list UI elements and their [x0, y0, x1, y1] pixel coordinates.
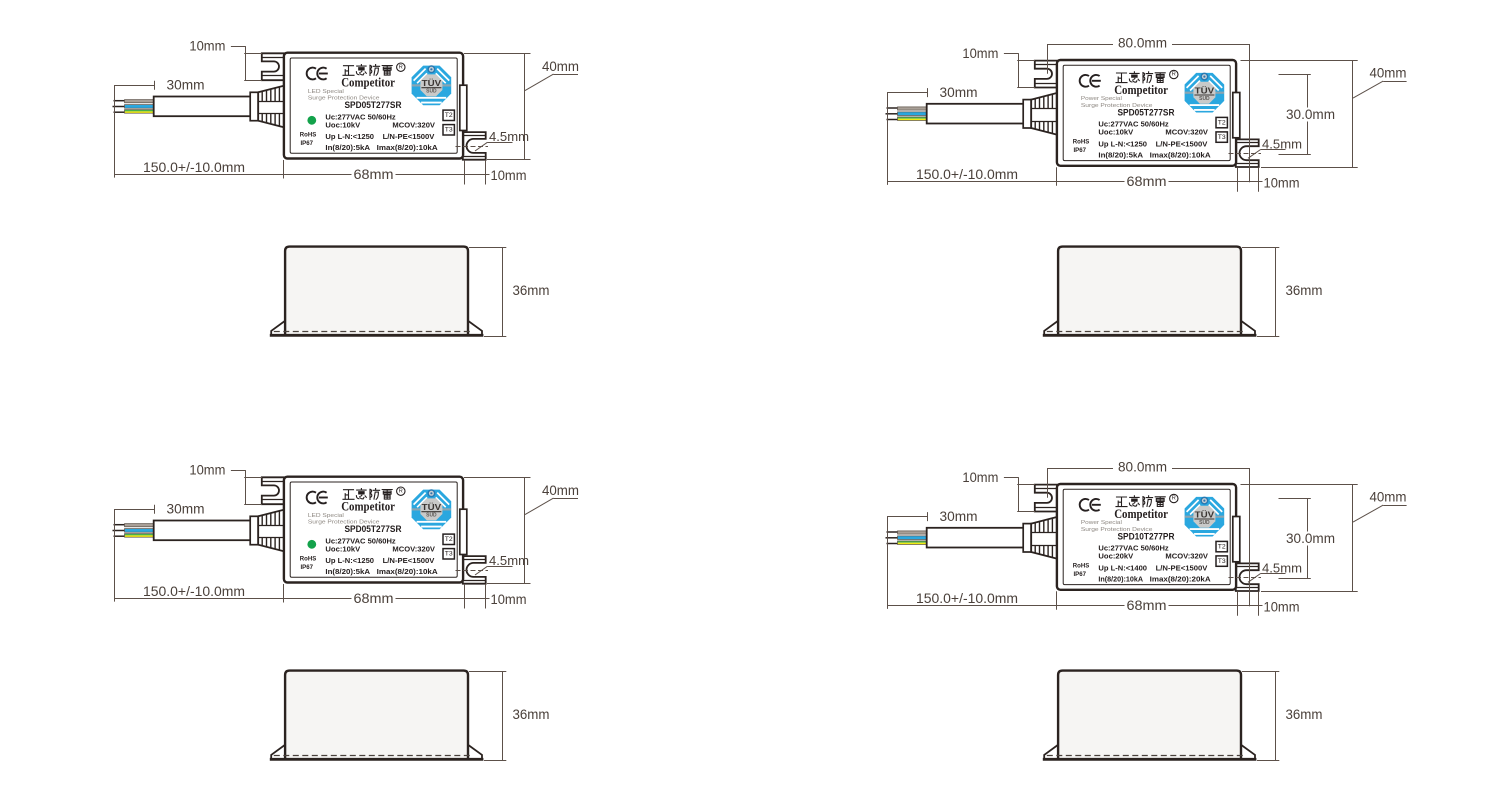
svg-text:SÜD: SÜD	[1199, 95, 1210, 102]
svg-text:Competitor: Competitor	[341, 499, 395, 514]
svg-text:Up L-N:<1250: Up L-N:<1250	[325, 556, 374, 565]
svg-text:T3: T3	[445, 551, 453, 558]
svg-text:T2: T2	[445, 536, 453, 543]
svg-text:T2: T2	[1218, 119, 1226, 126]
svg-text:TÜV: TÜV	[1195, 86, 1215, 96]
svg-text:In(8/20):5kA: In(8/20):5kA	[325, 143, 370, 152]
svg-text:L/N-PE<1500V: L/N-PE<1500V	[383, 556, 435, 565]
svg-text:R: R	[1172, 72, 1176, 78]
svg-text:MCOV:320V: MCOV:320V	[392, 120, 435, 129]
svg-text:Imax(8/20):10kA: Imax(8/20):10kA	[377, 143, 439, 152]
svg-text:L/N-PE<1500V: L/N-PE<1500V	[1156, 563, 1208, 572]
svg-text:150.0+/-10.0mm: 150.0+/-10.0mm	[916, 167, 1018, 182]
svg-text:4.5mm: 4.5mm	[489, 554, 529, 568]
svg-text:Competitor: Competitor	[341, 75, 395, 90]
svg-text:T2: T2	[445, 112, 453, 119]
svg-text:T3: T3	[1218, 134, 1226, 141]
svg-text:RoHS: RoHS	[300, 131, 317, 138]
svg-text:36mm: 36mm	[513, 283, 550, 298]
svg-text:150.0+/-10.0mm: 150.0+/-10.0mm	[916, 591, 1018, 606]
svg-text:4.5mm: 4.5mm	[489, 130, 529, 144]
svg-text:10mm: 10mm	[189, 39, 225, 54]
svg-text:R: R	[399, 64, 403, 70]
svg-text:150.0+/-10.0mm: 150.0+/-10.0mm	[143, 584, 245, 599]
svg-text:In(8/20):5kA: In(8/20):5kA	[325, 567, 370, 576]
svg-text:Uoc:20kV: Uoc:20kV	[1098, 552, 1133, 561]
svg-text:TÜV: TÜV	[422, 502, 442, 512]
svg-text:Competitor: Competitor	[1114, 506, 1168, 521]
svg-text:SÜD: SÜD	[1199, 519, 1210, 526]
svg-text:L/N-PE<1500V: L/N-PE<1500V	[383, 132, 435, 141]
svg-text:40mm: 40mm	[1370, 490, 1407, 505]
svg-text:R: R	[399, 488, 403, 494]
svg-text:L/N-PE<1500V: L/N-PE<1500V	[1156, 139, 1208, 148]
svg-text:MCOV:320V: MCOV:320V	[1165, 128, 1208, 137]
svg-text:30.0mm: 30.0mm	[1286, 531, 1335, 546]
svg-text:68mm: 68mm	[354, 167, 394, 182]
svg-text:In(8/20):10kA: In(8/20):10kA	[1098, 575, 1143, 584]
svg-text:36mm: 36mm	[1286, 707, 1323, 722]
svg-text:SPD05T277SR: SPD05T277SR	[1118, 106, 1175, 117]
svg-text:Imax(8/20):20kA: Imax(8/20):20kA	[1150, 575, 1212, 584]
svg-text:MCOV:320V: MCOV:320V	[392, 544, 435, 553]
svg-text:Up L-N:<1400: Up L-N:<1400	[1098, 563, 1147, 572]
svg-text:10mm: 10mm	[189, 463, 225, 478]
svg-text:TÜV: TÜV	[422, 78, 442, 88]
svg-text:30mm: 30mm	[167, 78, 205, 93]
svg-text:SPD05T277SR: SPD05T277SR	[345, 99, 402, 110]
svg-text:10mm: 10mm	[1264, 175, 1300, 190]
svg-text:68mm: 68mm	[1127, 174, 1167, 189]
svg-text:30mm: 30mm	[940, 85, 978, 100]
svg-text:10mm: 10mm	[962, 46, 998, 61]
svg-text:68mm: 68mm	[354, 591, 394, 606]
svg-text:IP67: IP67	[1074, 147, 1087, 154]
svg-text:40mm: 40mm	[542, 59, 579, 74]
svg-text:IP67: IP67	[1074, 571, 1087, 578]
svg-text:Uoc:10kV: Uoc:10kV	[325, 544, 360, 553]
svg-text:T3: T3	[1218, 558, 1226, 565]
svg-text:40mm: 40mm	[1370, 66, 1407, 81]
svg-text:Uoc:10kV: Uoc:10kV	[325, 120, 360, 129]
svg-text:80.0mm: 80.0mm	[1118, 36, 1167, 51]
svg-text:LED Special: LED Special	[308, 89, 344, 95]
svg-text:Competitor: Competitor	[1114, 82, 1168, 97]
svg-text:SPD05T277SR: SPD05T277SR	[345, 523, 402, 534]
svg-text:Imax(8/20):10kA: Imax(8/20):10kA	[377, 567, 439, 576]
svg-text:T2: T2	[1218, 543, 1226, 550]
svg-text:30mm: 30mm	[940, 509, 978, 524]
svg-text:30mm: 30mm	[167, 502, 205, 517]
svg-text:SÜD: SÜD	[426, 88, 437, 95]
svg-text:Up L-N:<1250: Up L-N:<1250	[325, 132, 374, 141]
svg-text:36mm: 36mm	[513, 707, 550, 722]
svg-text:10mm: 10mm	[962, 470, 998, 485]
svg-text:10mm: 10mm	[1264, 599, 1300, 614]
svg-text:68mm: 68mm	[1127, 598, 1167, 613]
svg-text:R: R	[1172, 496, 1176, 502]
svg-text:Power Special: Power Special	[1081, 520, 1122, 526]
svg-text:SPD10T277PR: SPD10T277PR	[1118, 530, 1175, 541]
svg-text:80.0mm: 80.0mm	[1118, 460, 1167, 475]
svg-text:36mm: 36mm	[1286, 283, 1323, 298]
svg-text:T3: T3	[445, 127, 453, 134]
svg-text:RoHS: RoHS	[1073, 139, 1090, 146]
svg-text:IP67: IP67	[301, 564, 314, 571]
svg-text:RoHS: RoHS	[1073, 563, 1090, 570]
svg-text:150.0+/-10.0mm: 150.0+/-10.0mm	[143, 160, 245, 175]
svg-text:40mm: 40mm	[542, 483, 579, 498]
svg-text:Imax(8/20):10kA: Imax(8/20):10kA	[1150, 151, 1212, 160]
svg-text:TÜV: TÜV	[1195, 510, 1215, 520]
svg-text:Up L-N:<1250: Up L-N:<1250	[1098, 139, 1147, 148]
svg-text:Power Special: Power Special	[1081, 96, 1122, 102]
svg-text:MCOV:320V: MCOV:320V	[1165, 552, 1208, 561]
svg-text:30.0mm: 30.0mm	[1286, 107, 1335, 122]
svg-text:RoHS: RoHS	[300, 555, 317, 562]
svg-text:Uoc:10kV: Uoc:10kV	[1098, 128, 1133, 137]
svg-text:10mm: 10mm	[491, 592, 527, 607]
svg-text:IP67: IP67	[301, 140, 314, 147]
svg-text:LED Special: LED Special	[308, 513, 344, 519]
svg-text:In(8/20):5kA: In(8/20):5kA	[1098, 151, 1143, 160]
svg-text:SÜD: SÜD	[426, 512, 437, 519]
svg-text:10mm: 10mm	[491, 168, 527, 183]
